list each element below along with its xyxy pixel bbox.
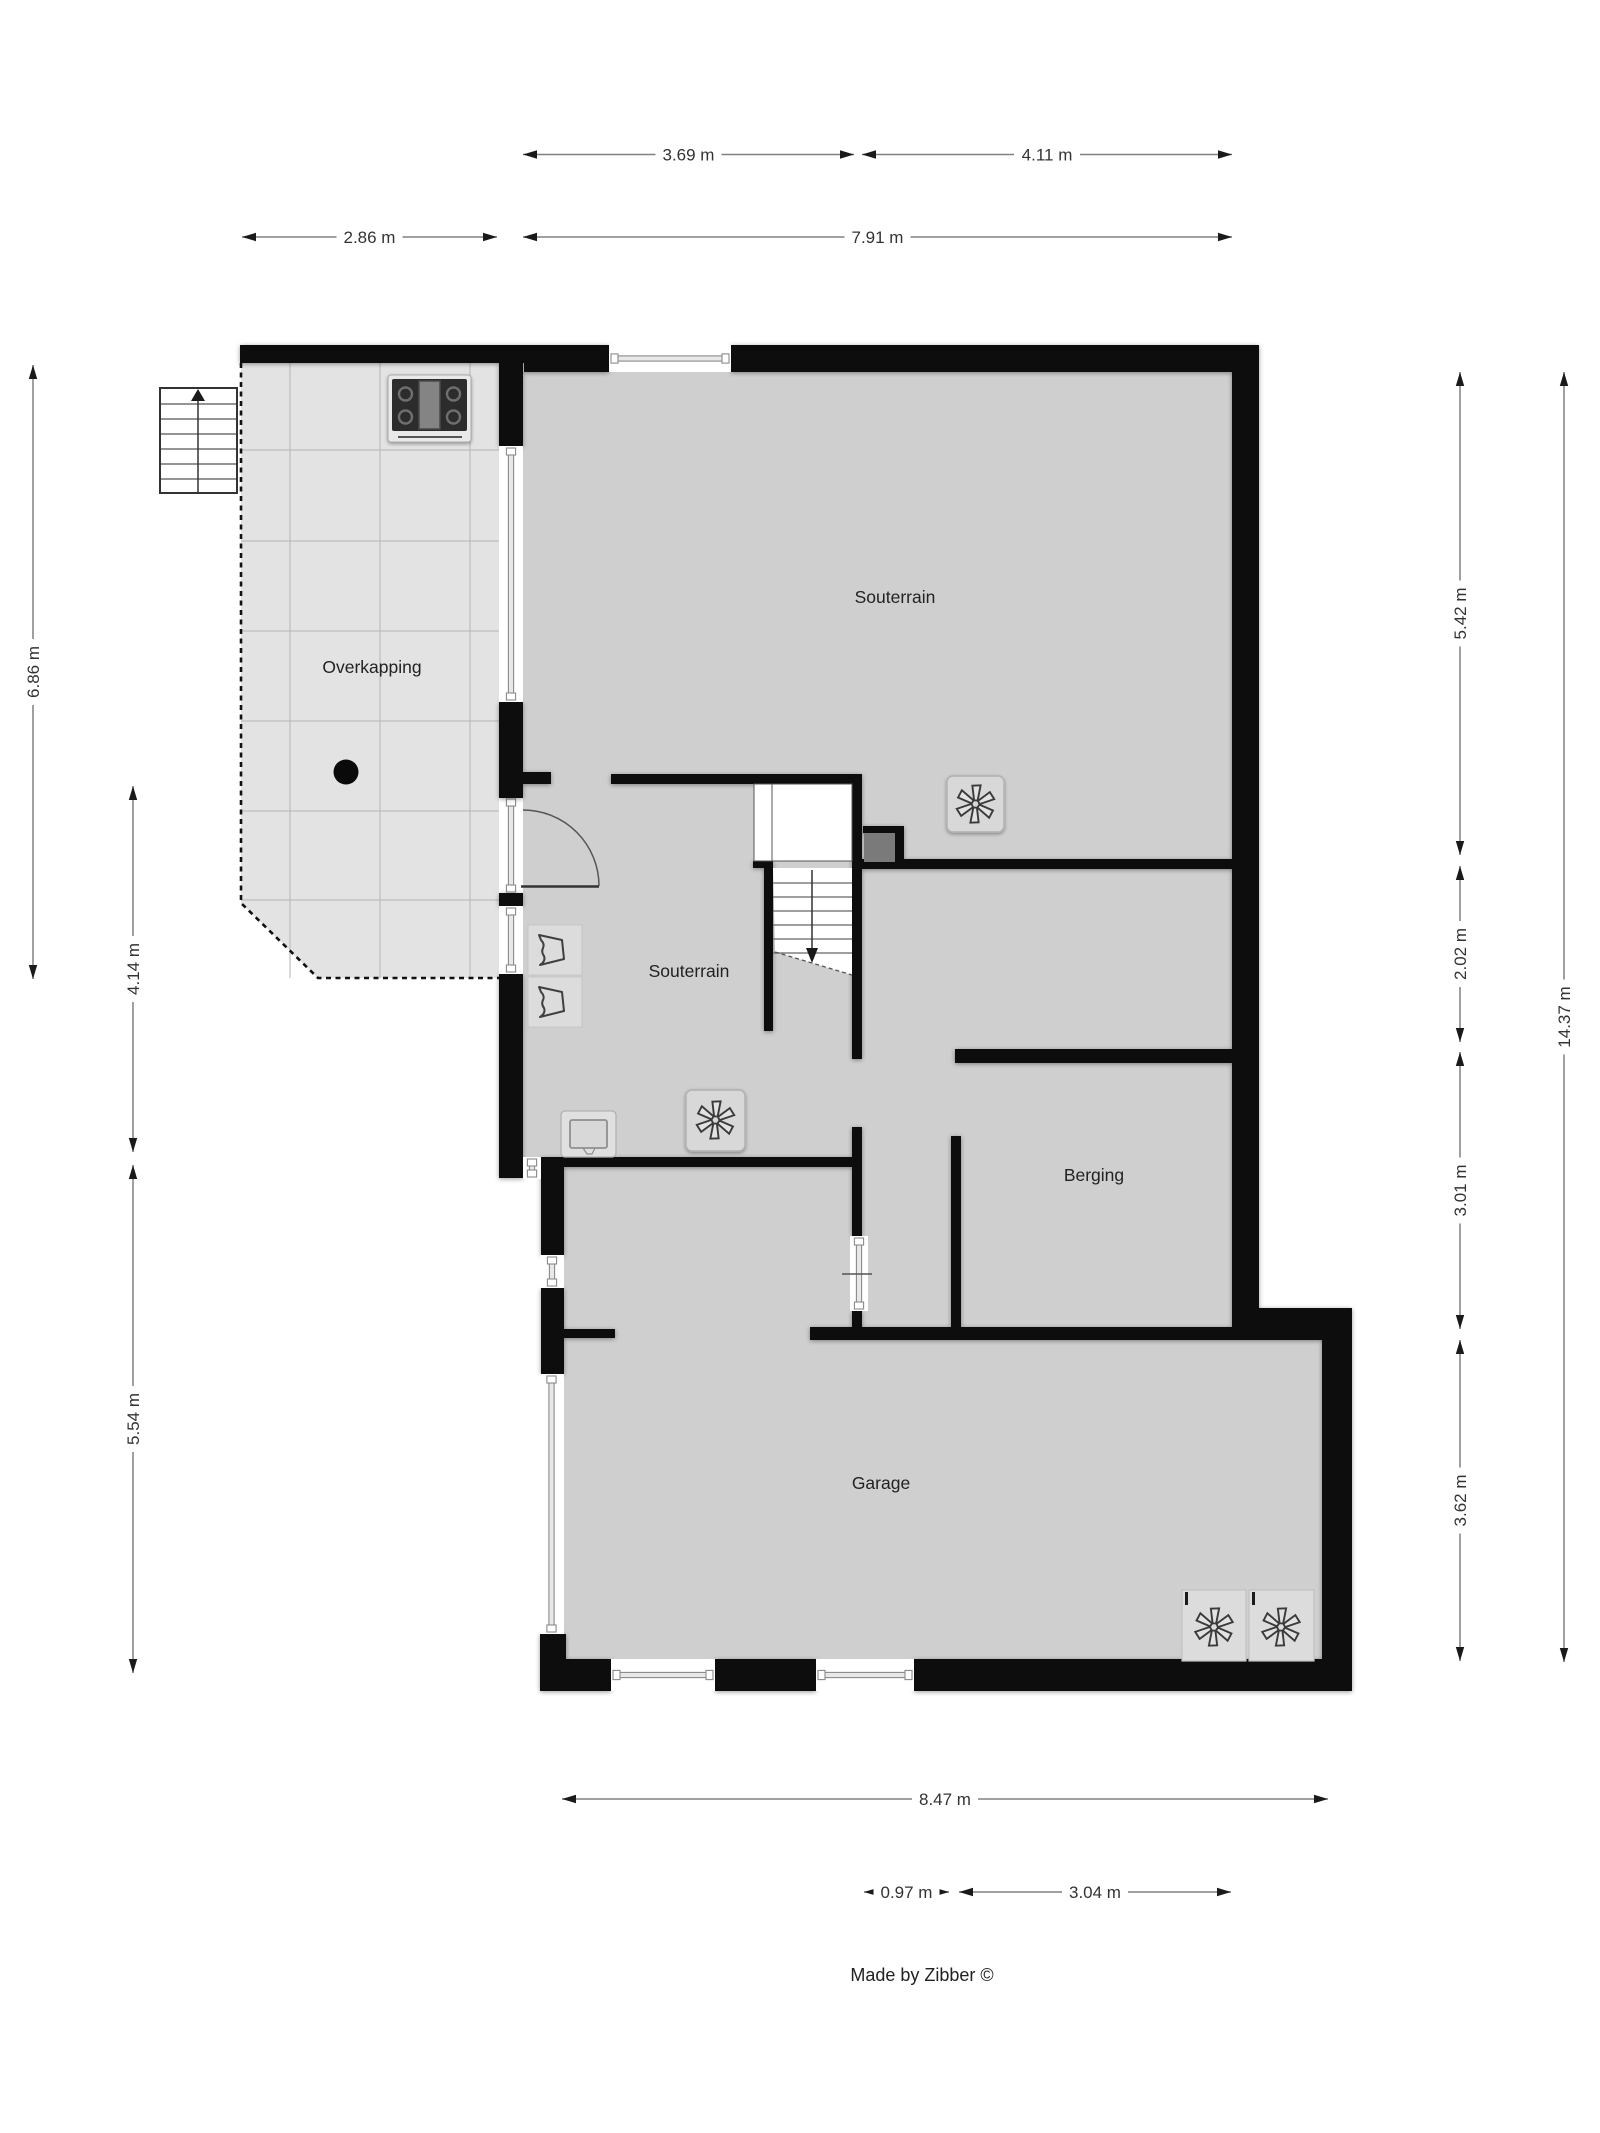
svg-text:5.42 m: 5.42 m bbox=[1451, 588, 1470, 640]
svg-text:2.86 m: 2.86 m bbox=[344, 228, 396, 247]
svg-text:Souterrain: Souterrain bbox=[649, 961, 730, 981]
svg-text:Souterrain: Souterrain bbox=[855, 587, 936, 607]
svg-text:3.04 m: 3.04 m bbox=[1069, 1883, 1121, 1902]
svg-text:3.01 m: 3.01 m bbox=[1451, 1165, 1470, 1217]
svg-text:14.37 m: 14.37 m bbox=[1555, 986, 1574, 1047]
svg-text:6.86 m: 6.86 m bbox=[24, 646, 43, 698]
svg-text:3.62 m: 3.62 m bbox=[1451, 1475, 1470, 1527]
svg-text:7.91 m: 7.91 m bbox=[852, 228, 904, 247]
svg-text:3.69 m: 3.69 m bbox=[663, 146, 715, 165]
svg-text:5.54 m: 5.54 m bbox=[124, 1393, 143, 1445]
svg-text:0.97 m: 0.97 m bbox=[881, 1883, 933, 1902]
svg-text:2.02 m: 2.02 m bbox=[1451, 928, 1470, 980]
svg-text:Garage: Garage bbox=[852, 1473, 910, 1493]
svg-text:8.47 m: 8.47 m bbox=[919, 1790, 971, 1809]
svg-text:4.11 m: 4.11 m bbox=[1022, 146, 1073, 165]
svg-text:Berging: Berging bbox=[1064, 1165, 1124, 1185]
svg-text:Overkapping: Overkapping bbox=[322, 657, 421, 677]
svg-text:Made by Zibber ©: Made by Zibber © bbox=[850, 1965, 993, 1985]
svg-text:4.14 m: 4.14 m bbox=[124, 943, 143, 995]
